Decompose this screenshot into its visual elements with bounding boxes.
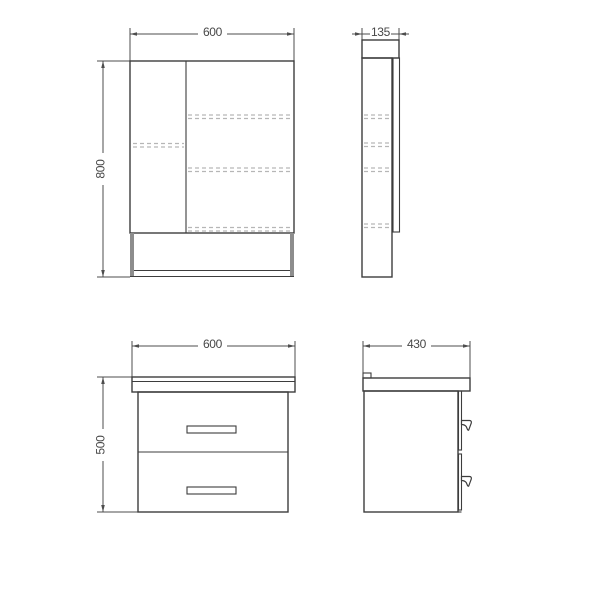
dimension-label-height: 800: [94, 159, 108, 179]
arrowhead-left: [363, 344, 370, 348]
dimension-label-width: 600: [203, 25, 223, 39]
mirror-cabinet-front-view: 600 800: [94, 25, 295, 277]
countertop-front: [132, 377, 295, 392]
vanity-side-depth-dimension: 430: [363, 337, 470, 378]
drawer-handle-top: [187, 426, 236, 433]
arrowhead-right: [287, 32, 294, 36]
arrowhead-right: [355, 32, 362, 36]
dimension-label-width: 600: [203, 337, 223, 351]
arrowhead-down: [101, 270, 105, 277]
arrowhead-up: [101, 377, 105, 384]
shelf-side-panel-left: [130, 233, 134, 276]
technical-drawing-canvas: 600 800: [0, 0, 600, 600]
countertop-profile: [363, 378, 470, 391]
arrowhead-left: [399, 32, 406, 36]
shelf-side-panel-right: [290, 233, 294, 276]
dimension-label-depth: 430: [407, 337, 427, 351]
arrowhead-down: [101, 505, 105, 512]
dimension-label-height: 500: [94, 435, 108, 455]
mirror-door-profile: [393, 58, 400, 232]
vanity-front-height-dimension: 500: [94, 377, 139, 512]
arrowhead-right: [463, 344, 470, 348]
mirror-front-height-dimension: 800: [94, 61, 131, 277]
drawer-handle-profile-top: [462, 421, 472, 431]
dimension-label-depth: 135: [371, 25, 391, 39]
drawer-front-bottom-profile: [459, 454, 462, 510]
vanity-front-view: 600 500: [94, 337, 296, 512]
mirror-open-shelf: [130, 233, 294, 277]
technical-drawing-page: 600 800: [0, 0, 600, 600]
drawer-handle-bottom: [187, 487, 236, 494]
mirror-cabinet-side-view: 135: [352, 25, 409, 277]
mirror-side-depth-dimension: 135: [352, 25, 409, 40]
vanity-body-profile: [364, 391, 458, 512]
countertop-back-lip: [363, 373, 371, 378]
vanity-front-width-dimension: 600: [132, 337, 295, 377]
arrowhead-left: [130, 32, 137, 36]
drawer-handle-profile-bottom: [462, 477, 472, 487]
arrowhead-up: [101, 61, 105, 68]
arrowhead-right: [288, 344, 295, 348]
arrowhead-left: [132, 344, 139, 348]
mirror-top-cap: [362, 40, 399, 58]
mirror-front-width-dimension: 600: [130, 25, 294, 61]
vanity-side-view: 430: [363, 337, 471, 512]
